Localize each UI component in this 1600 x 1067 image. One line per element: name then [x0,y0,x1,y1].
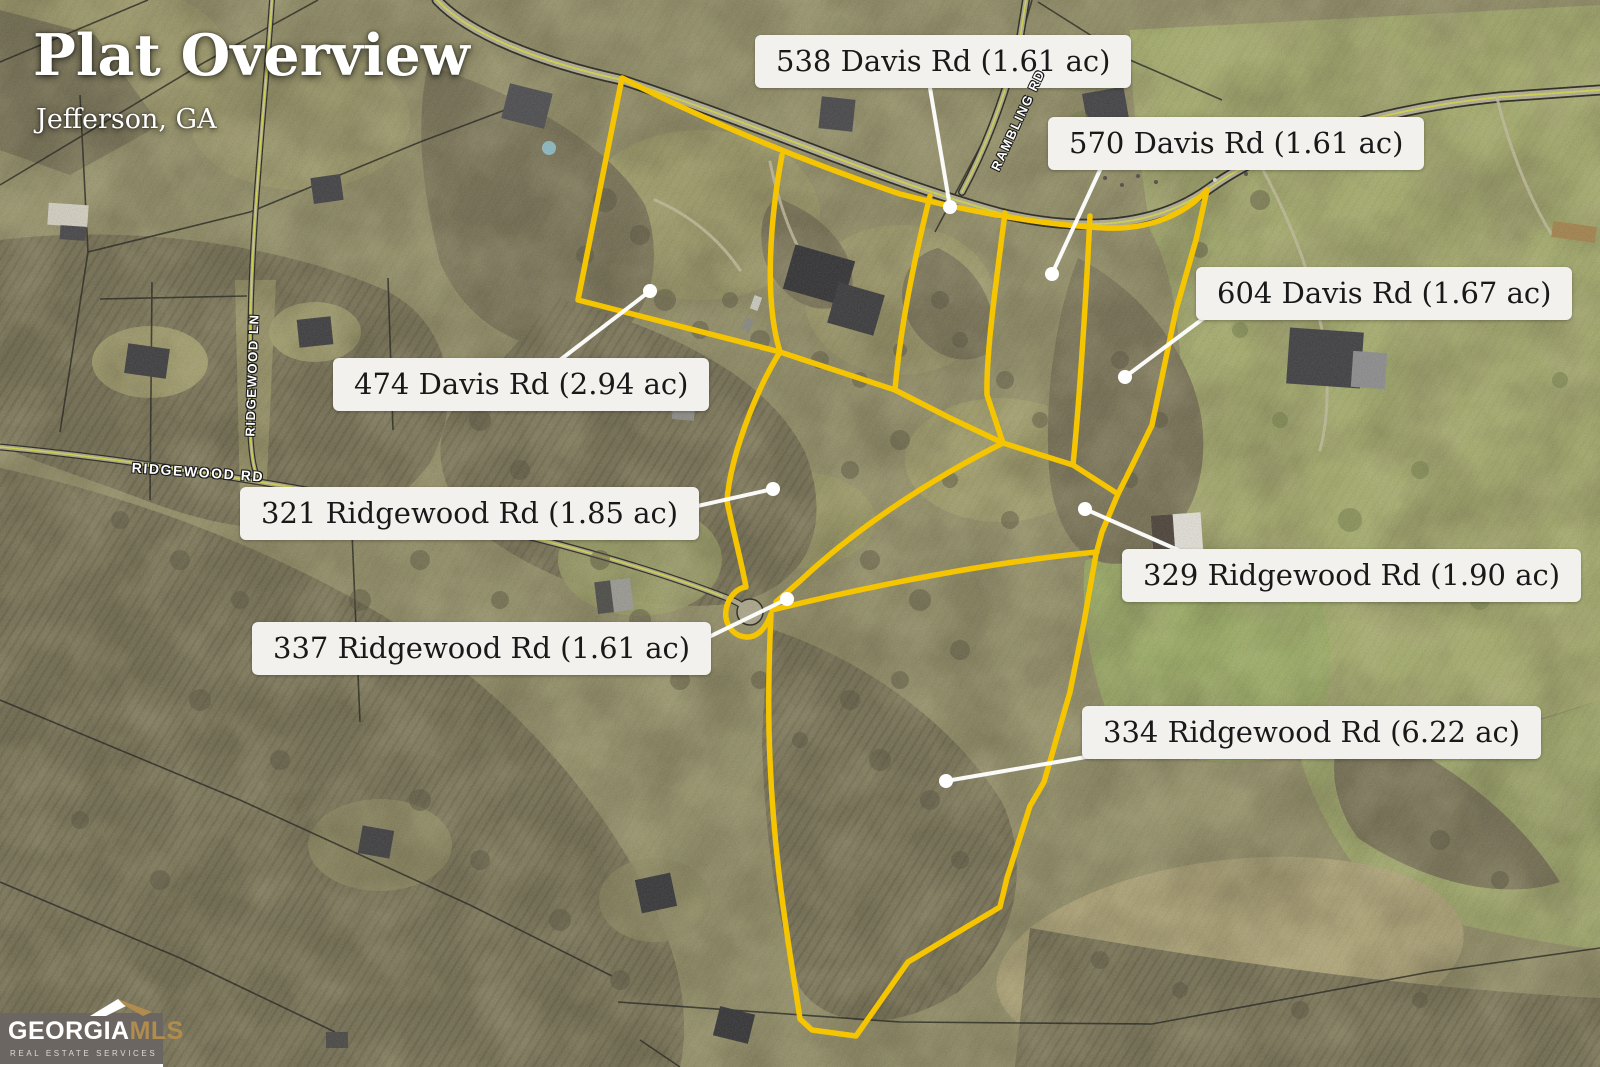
logo-tagline: REAL ESTATE SERVICES [10,1049,157,1058]
page-title: Plat Overview [33,22,470,89]
georgia-mls-logo: GEORGIAMLS REAL ESTATE SERVICES [0,1013,163,1067]
parcel-label-570-davis: 570 Davis Rd (1.61 ac) [1048,117,1424,170]
parcel-label-329-ridgewood: 329 Ridgewood Rd (1.90 ac) [1122,549,1581,602]
parcel-label-474-davis: 474 Davis Rd (2.94 ac) [333,358,709,411]
parcel-label-538-davis: 538 Davis Rd (1.61 ac) [755,35,1131,88]
logo-text-mls: MLS [130,1017,184,1045]
logo-wordmark: GEORGIAMLS [8,1019,184,1044]
logo-text-georgia: GEORGIA [8,1017,130,1045]
parcel-label-334-ridgewood: 334 Ridgewood Rd (6.22 ac) [1082,706,1541,759]
page-subtitle: Jefferson, GA [36,104,217,135]
screenshot-root: { "header": { "title": "Plat Overview", … [0,0,1600,1067]
parcel-label-604-davis: 604 Davis Rd (1.67 ac) [1196,267,1572,320]
parcel-label-337-ridgewood: 337 Ridgewood Rd (1.61 ac) [252,622,711,675]
parcel-label-321-ridgewood: 321 Ridgewood Rd (1.85 ac) [240,487,699,540]
roof-icon [88,996,154,1016]
